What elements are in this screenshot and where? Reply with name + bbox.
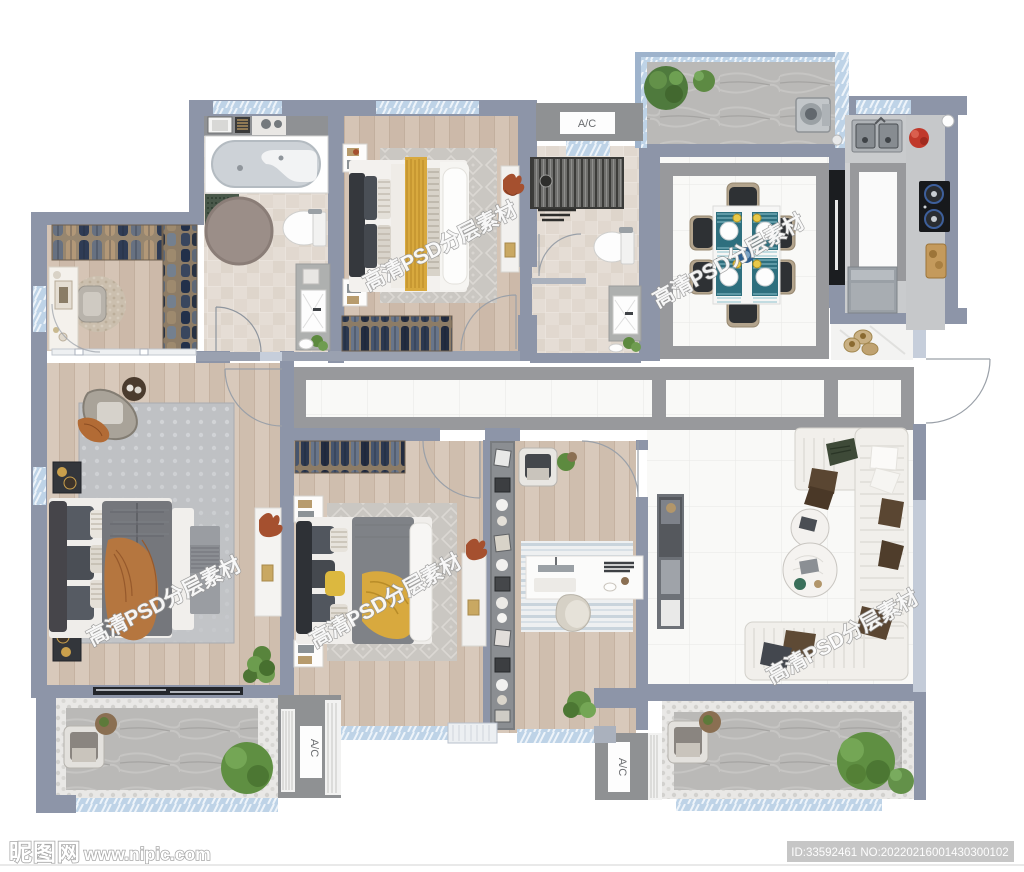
- svg-text:A/C: A/C: [616, 758, 628, 776]
- svg-text:ID:33592461 NO:202202160014303: ID:33592461 NO:20220216001430300102: [791, 847, 1008, 859]
- svg-text:昵图网: 昵图网: [9, 839, 81, 865]
- svg-text:A/C: A/C: [578, 118, 596, 130]
- svg-text:www.nipic.com: www.nipic.com: [83, 844, 211, 864]
- svg-text:A/C: A/C: [308, 739, 320, 757]
